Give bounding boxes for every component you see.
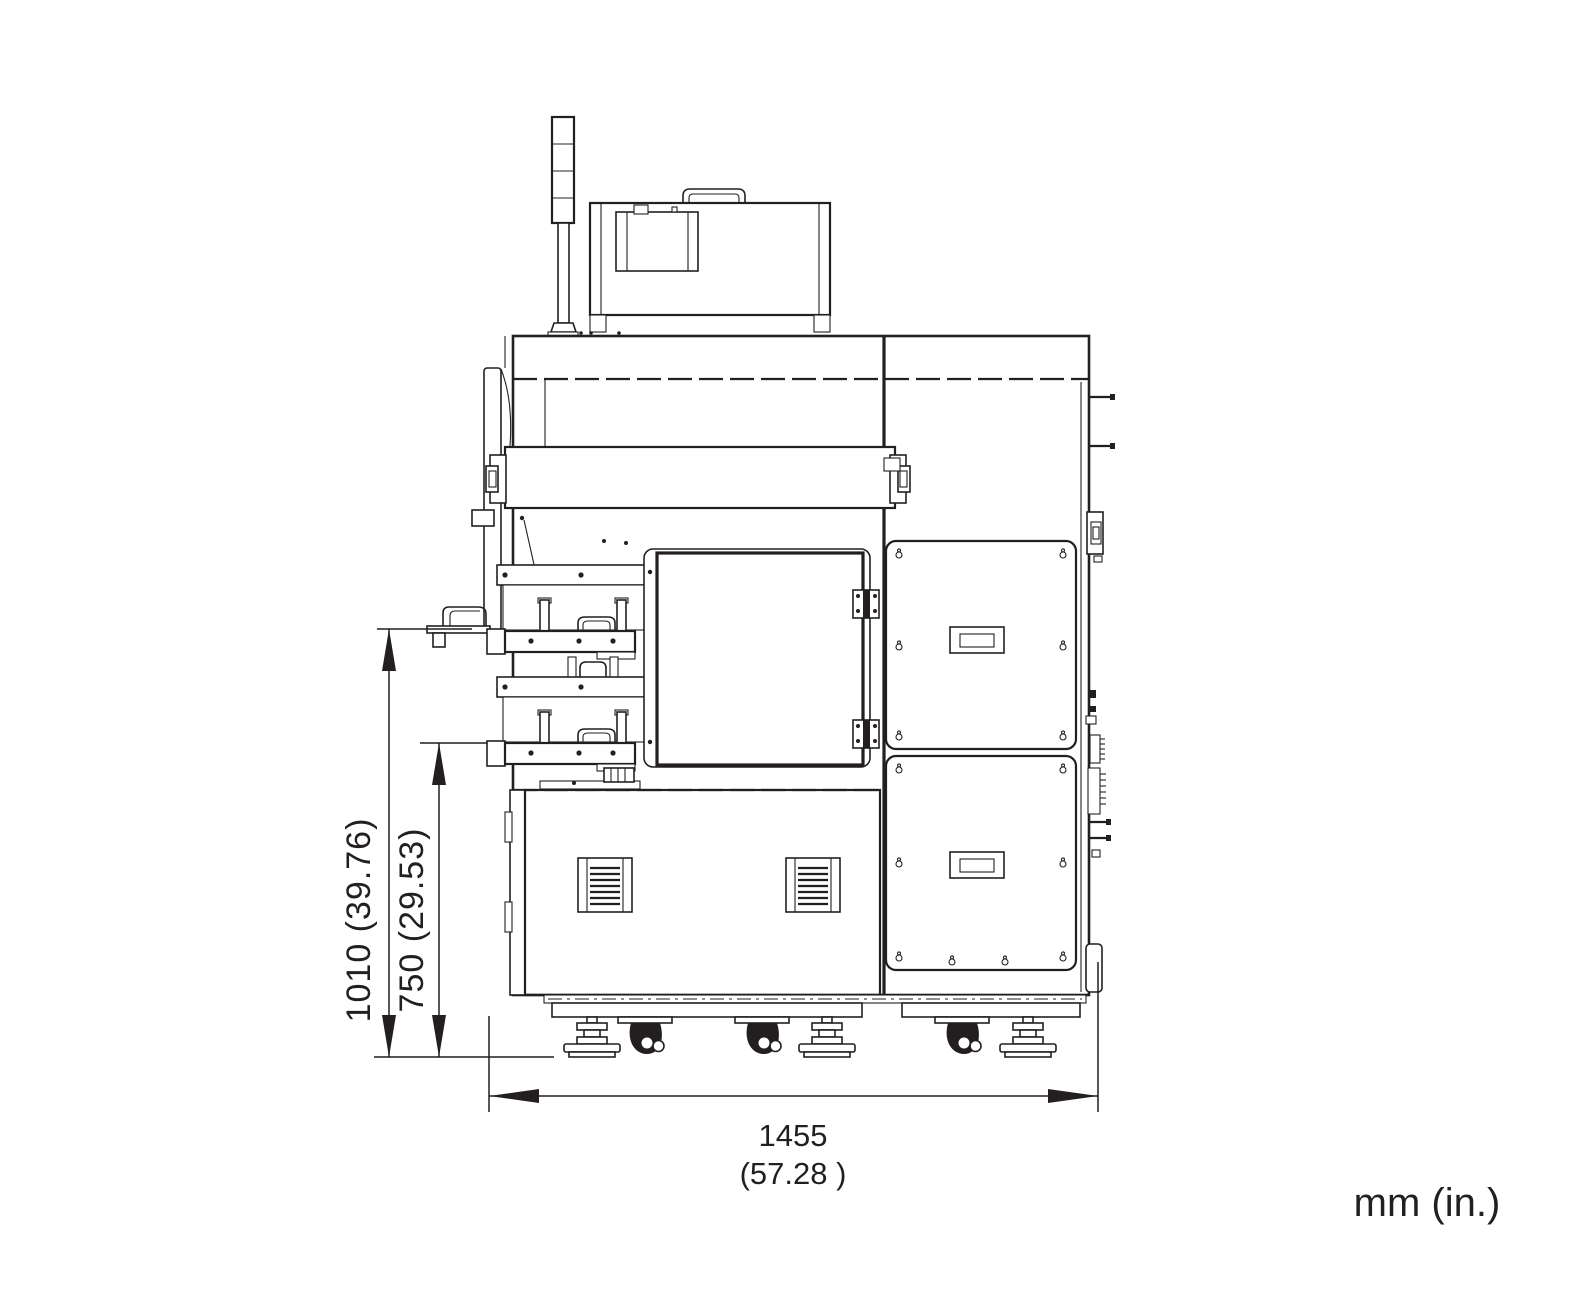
dimension-height-table: 750 (29.53) <box>393 743 487 1057</box>
top-control-unit <box>579 189 830 335</box>
loader-tray-lower <box>487 677 645 771</box>
front-door <box>644 549 879 767</box>
door-hinge-upper <box>853 590 879 618</box>
drawing-canvas: 1010 (39.76) 750 (29.53) 1455 (57.28 ) m… <box>0 0 1576 1301</box>
dim-label-width-in: (57.28 ) <box>740 1156 847 1191</box>
vent-right <box>786 858 840 912</box>
units-note: mm (in.) <box>1354 1181 1501 1225</box>
dim-label-width-mm: 1455 <box>759 1118 828 1153</box>
caster-left <box>618 1017 672 1054</box>
leveling-foot-right <box>1000 1017 1056 1057</box>
vent-left <box>578 858 632 912</box>
dim-label-height-table: 750 (29.53) <box>393 828 431 1013</box>
base-frame <box>544 995 1086 1017</box>
leveling-foot-middle <box>799 1017 855 1057</box>
right-side-fittings <box>1086 394 1115 992</box>
right-access-panel-lower <box>886 756 1076 970</box>
top-unit-handle <box>683 189 745 203</box>
signal-tower <box>548 117 578 337</box>
side-shelf <box>427 607 490 647</box>
door-hinge-lower <box>853 720 879 748</box>
caster-right <box>935 1017 989 1054</box>
leveling-foot-left <box>564 1017 620 1057</box>
loader-tray-upper <box>487 565 645 659</box>
technical-drawing: 1010 (39.76) 750 (29.53) 1455 (57.28 ) m… <box>0 0 1576 1301</box>
front-top-cover-band <box>486 447 910 508</box>
caster-middle <box>735 1017 789 1054</box>
units-label: mm (in.) <box>1354 1181 1501 1225</box>
dim-label-height-total: 1010 (39.76) <box>340 818 378 1023</box>
right-access-panel-upper <box>886 541 1076 749</box>
top-unit-screen <box>616 212 698 271</box>
